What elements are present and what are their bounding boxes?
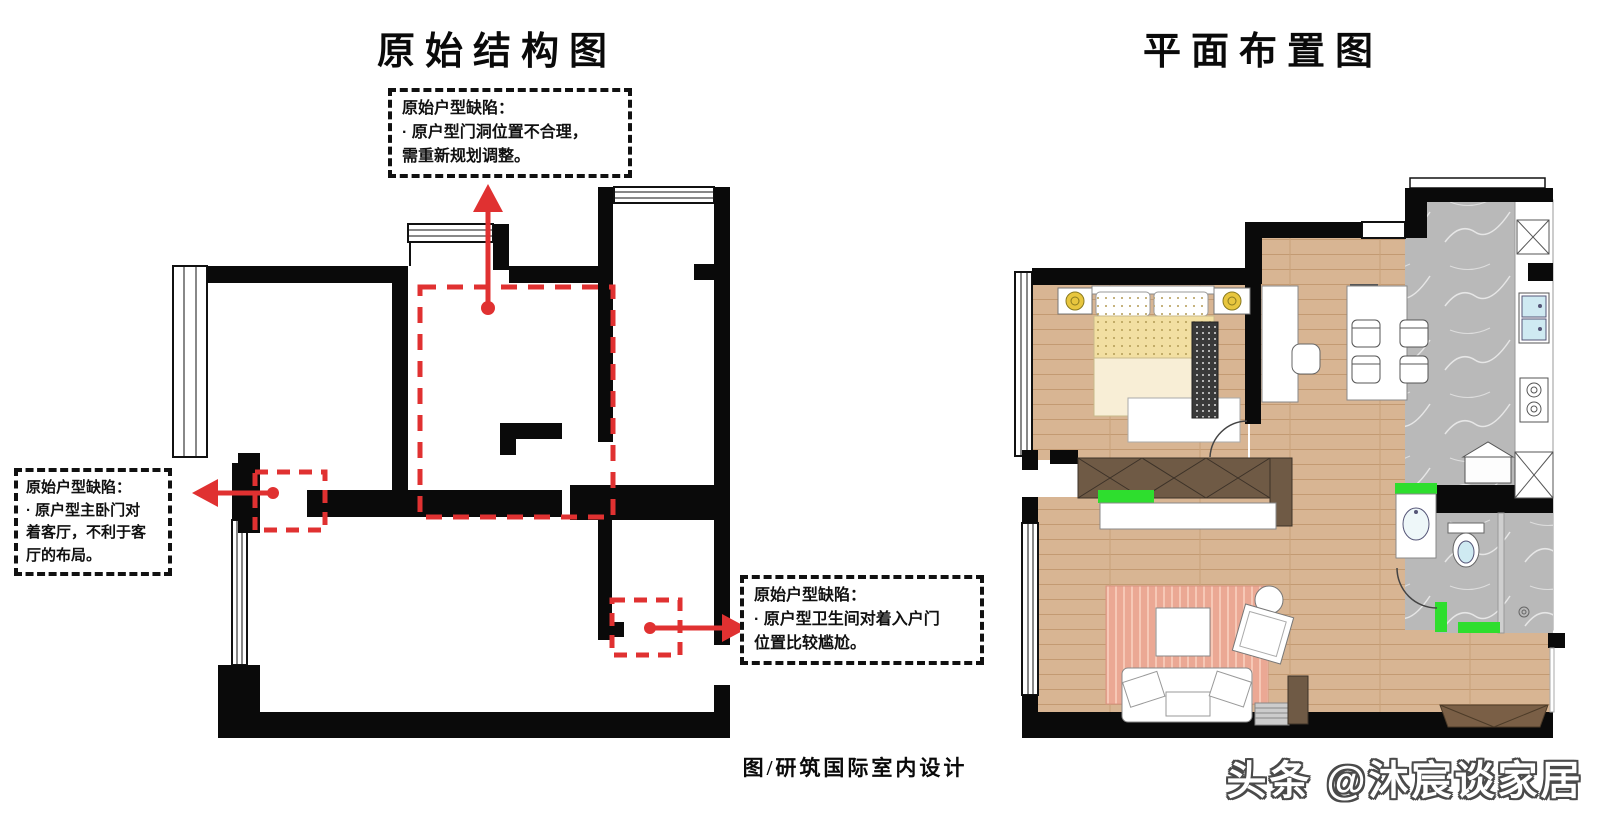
hall-cabinet bbox=[1288, 676, 1308, 724]
window-bedroom-left bbox=[173, 266, 207, 457]
doormat bbox=[1255, 703, 1289, 725]
lamp-icon bbox=[1066, 292, 1084, 310]
sofa bbox=[1122, 668, 1252, 722]
credit-caption: 图/研筑国际室内设计 bbox=[743, 752, 968, 782]
window-living bbox=[1022, 523, 1038, 695]
right-plan-title: 平面布置图 bbox=[1143, 20, 1383, 75]
toutiao-watermark: 头条 @沐宸谈家居 bbox=[1226, 748, 1583, 806]
bedside-rug bbox=[1128, 398, 1240, 442]
callout-bedroom-defect: 原始户型缺陷： · 原户型主卧门对 着客厅，不利于客 厅的布局。 bbox=[14, 468, 172, 576]
fridge bbox=[1517, 220, 1549, 254]
shower-glass bbox=[1498, 513, 1504, 633]
window-dining bbox=[1362, 222, 1405, 238]
sink bbox=[1519, 293, 1549, 343]
entry-floor bbox=[1405, 630, 1553, 715]
walls bbox=[207, 187, 730, 738]
green-accent bbox=[1435, 602, 1447, 632]
callout-bathroom-defect: 原始户型缺陷： · 原户型卫生间对着入户门 位置比较尴尬。 bbox=[740, 575, 984, 665]
tv-console bbox=[1100, 503, 1276, 529]
desk bbox=[1262, 286, 1298, 402]
lamp-icon bbox=[1223, 292, 1241, 310]
window-kitchen bbox=[1410, 178, 1545, 188]
arrow-up-icon bbox=[473, 184, 503, 212]
window-bedroom bbox=[1015, 272, 1032, 456]
stove bbox=[1520, 378, 1548, 422]
desk-chair bbox=[1292, 344, 1320, 374]
green-accent bbox=[1098, 490, 1154, 503]
arrow-left-icon bbox=[192, 479, 218, 507]
floorplan-comparison-image: 原始结构图 平面布置图 原始户型缺陷： · 原户型门洞位置不合理， 需重新规划调… bbox=[0, 0, 1600, 817]
window-middle-top bbox=[408, 224, 493, 266]
tv-cabinet bbox=[1078, 458, 1292, 529]
green-accent bbox=[1458, 622, 1500, 633]
floorplans-drawing bbox=[0, 0, 1600, 817]
left-plan-title: 原始结构图 bbox=[377, 20, 617, 75]
base-cabinet bbox=[1515, 452, 1553, 498]
throw-blanket bbox=[1192, 322, 1218, 418]
living-room-furniture bbox=[1106, 586, 1308, 725]
window-kitchen-top bbox=[614, 187, 714, 203]
green-accent bbox=[1395, 483, 1437, 494]
furnished-layout-plan bbox=[1015, 178, 1565, 738]
original-structure-plan bbox=[173, 184, 748, 738]
entry-mat bbox=[1440, 705, 1548, 727]
window-living-left bbox=[232, 520, 247, 665]
coffee-table bbox=[1156, 608, 1210, 656]
callout-door-defect: 原始户型缺陷： · 原户型门洞位置不合理， 需重新规划调整。 bbox=[388, 88, 632, 178]
entry-door-opening bbox=[1550, 648, 1554, 712]
